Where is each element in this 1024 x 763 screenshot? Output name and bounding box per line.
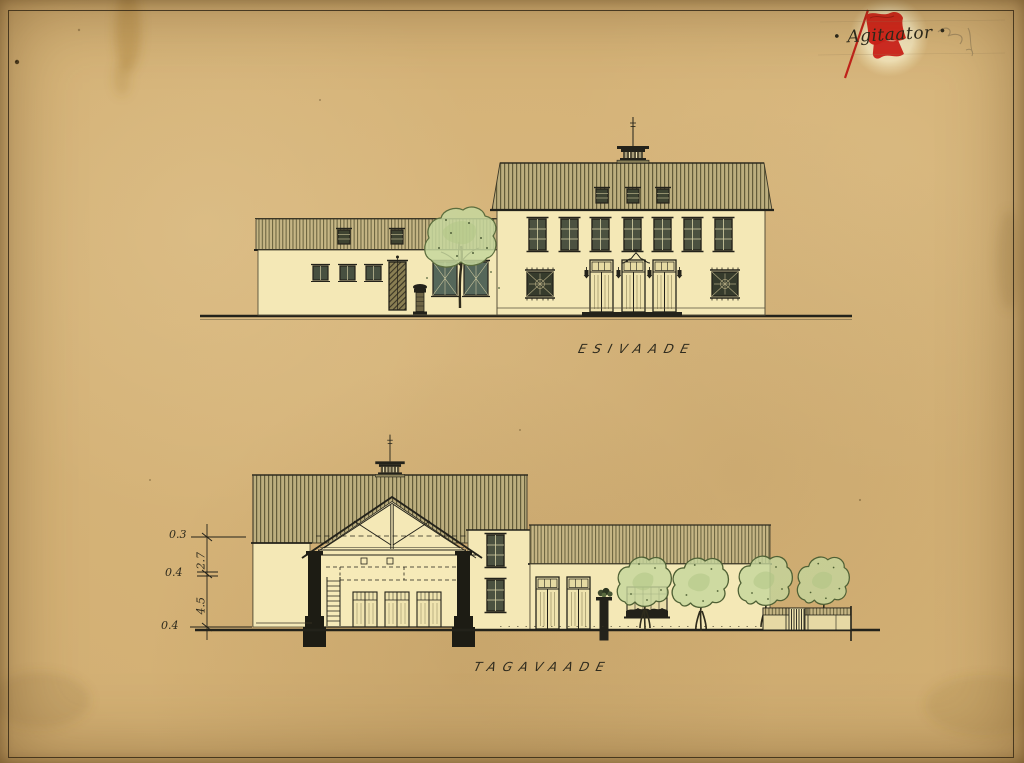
side-door <box>387 256 408 311</box>
rear-elevation <box>190 435 880 647</box>
front-elevation <box>200 117 852 320</box>
front-cupola <box>617 117 649 163</box>
rear-interior-doors <box>353 592 441 627</box>
rear-elevation-label: TAGAVAADE <box>448 659 637 674</box>
dimension-lines <box>190 524 252 640</box>
rear-tall-wall <box>466 530 531 630</box>
dimension-label-0-4-lower: 0.4 <box>161 619 179 632</box>
front-elevation-label: ESIVAADE <box>550 341 724 356</box>
rear-fence <box>763 606 851 641</box>
signature-dot-left: • <box>827 29 848 45</box>
front-main-block <box>490 117 774 316</box>
drawing-sheet: •Agitaator• ESIVAADE TAGAVAADE 0.3 2.7 0… <box>0 0 1024 763</box>
rear-cupola <box>375 435 404 477</box>
dimension-label-2-7: 2.7 <box>195 548 208 570</box>
pin-hole <box>15 60 19 64</box>
elevation-drawings <box>0 0 1024 763</box>
dimension-label-0-4-upper: 0.4 <box>165 566 183 579</box>
dimension-label-4-5: 4.5 <box>195 593 208 615</box>
dimension-label-0-3: 0.3 <box>169 528 187 541</box>
signature-dot-right: • <box>932 24 953 40</box>
